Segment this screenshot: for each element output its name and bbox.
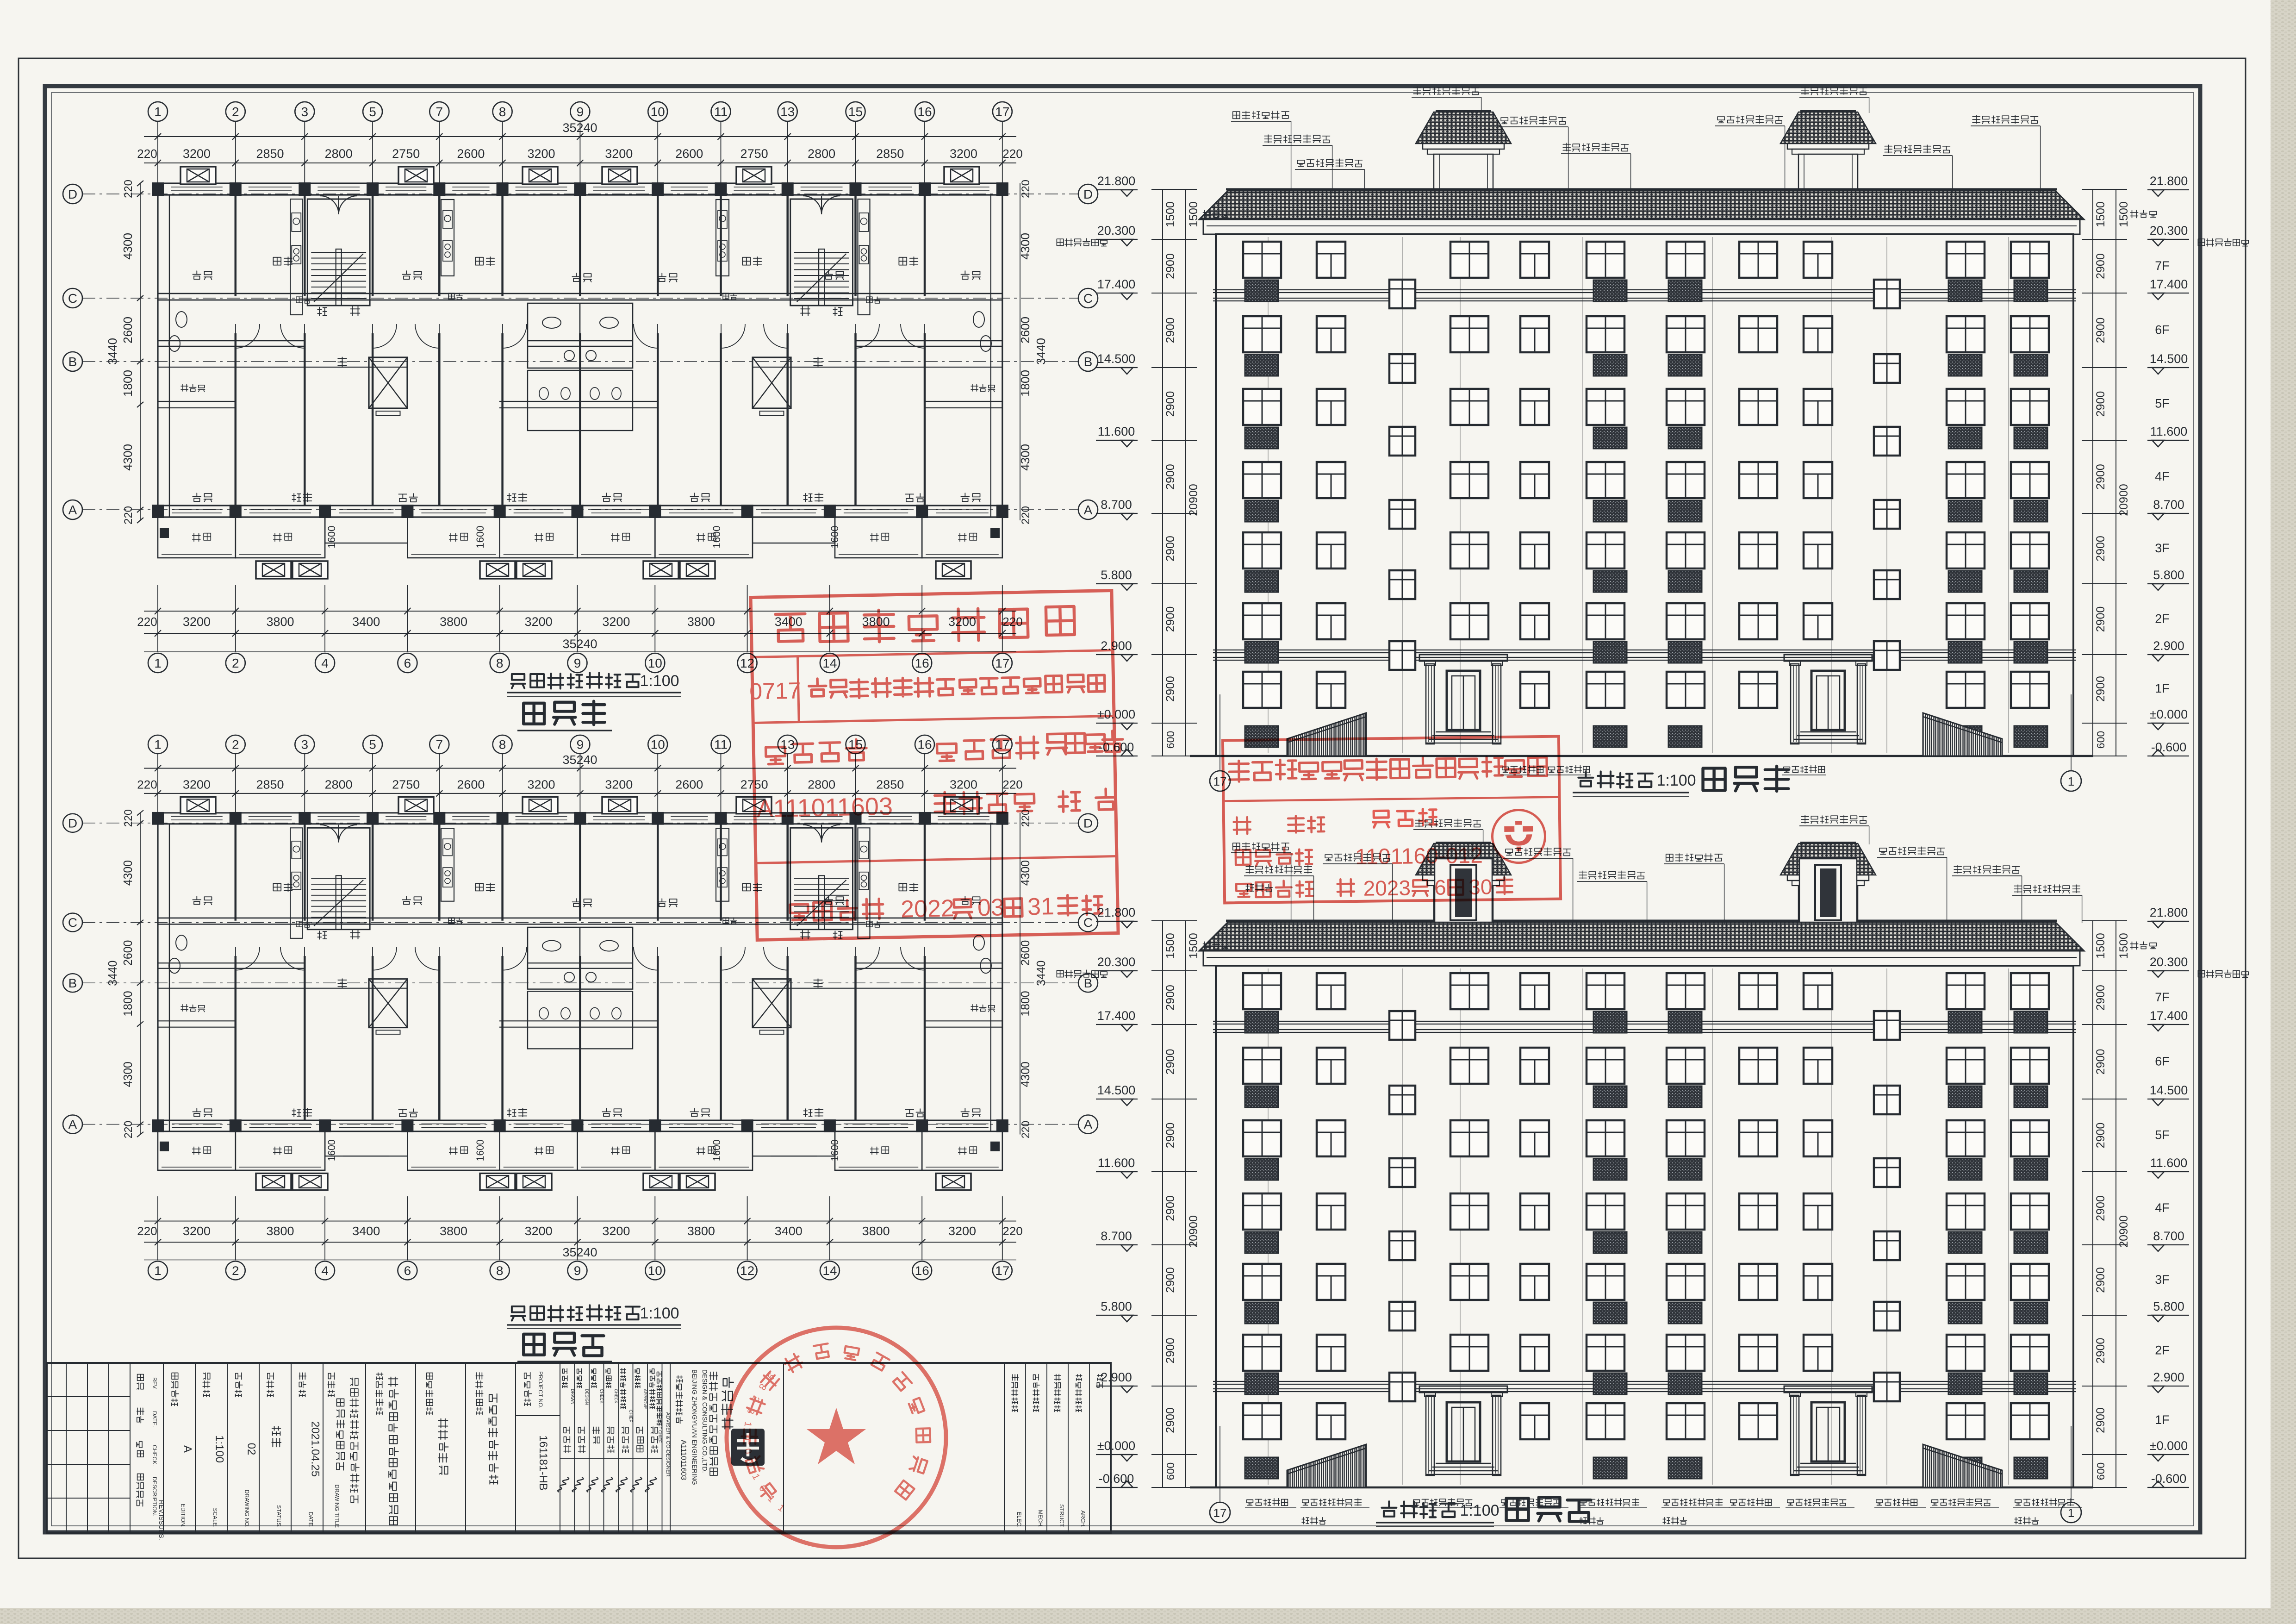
svg-text:MECH.: MECH. <box>1037 1510 1044 1528</box>
svg-text:1101160-012: 1101160-012 <box>1355 843 1483 869</box>
svg-text:A111011603: A111011603 <box>679 1440 687 1480</box>
svg-text:DESIGN & CONSULTING CO.,LTD.: DESIGN & CONSULTING CO.,LTD. <box>701 1369 709 1473</box>
svg-text:1600: 1600 <box>326 526 337 549</box>
svg-text:2F: 2F <box>2155 612 2170 626</box>
svg-text:0: 0 <box>741 1435 752 1441</box>
svg-text:1:100: 1:100 <box>1460 1502 1499 1519</box>
svg-text:2900: 2900 <box>1164 464 1177 490</box>
svg-text:2600: 2600 <box>675 147 703 161</box>
svg-text:3200: 3200 <box>183 147 211 161</box>
svg-text:7F: 7F <box>2155 259 2170 273</box>
svg-text:20900: 20900 <box>1187 484 1200 516</box>
svg-text:A111011603: A111011603 <box>756 793 893 823</box>
svg-text:2600: 2600 <box>1018 317 1032 344</box>
svg-text:2900: 2900 <box>2094 464 2107 490</box>
svg-text:A: A <box>1084 503 1093 517</box>
svg-text:03: 03 <box>977 894 1005 921</box>
svg-text:1:100: 1:100 <box>1656 772 1696 789</box>
svg-text:2900: 2900 <box>1164 606 1177 632</box>
svg-text:4300: 4300 <box>1018 444 1032 471</box>
svg-text:DRAWING TITLE: DRAWING TITLE <box>334 1485 340 1528</box>
svg-text:1800: 1800 <box>121 370 135 397</box>
svg-text:2900: 2900 <box>1164 536 1177 562</box>
svg-text:10: 10 <box>651 105 665 119</box>
svg-text:3440: 3440 <box>1034 338 1048 365</box>
svg-text:2022: 2022 <box>901 895 955 923</box>
svg-text:16: 16 <box>917 105 932 119</box>
svg-text:D: D <box>1083 187 1093 201</box>
svg-text:30: 30 <box>1468 874 1493 899</box>
svg-text:2850: 2850 <box>256 147 284 161</box>
svg-text:4: 4 <box>321 656 329 670</box>
svg-text:3F: 3F <box>2155 541 2170 555</box>
svg-text:600: 600 <box>1164 731 1176 749</box>
svg-text:1: 1 <box>154 656 162 670</box>
svg-text:2600: 2600 <box>121 317 135 344</box>
svg-text:1800: 1800 <box>1018 370 1032 397</box>
svg-text:600: 600 <box>2095 731 2107 749</box>
svg-text:2.900: 2.900 <box>2153 639 2184 653</box>
svg-text:2900: 2900 <box>2094 253 2107 279</box>
svg-text:±0.000: ±0.000 <box>1097 707 1135 721</box>
svg-text:220: 220 <box>137 147 157 161</box>
svg-text:14: 14 <box>822 656 837 670</box>
svg-text:STRUCT.: STRUCT. <box>1058 1504 1065 1528</box>
svg-text:10: 10 <box>648 656 662 670</box>
svg-text:220: 220 <box>1002 147 1022 161</box>
svg-text:C: C <box>68 291 77 306</box>
svg-text:8.700: 8.700 <box>1101 498 1132 512</box>
svg-text:13: 13 <box>780 105 795 119</box>
svg-text:20900: 20900 <box>2117 484 2130 516</box>
svg-text:STATUS.: STATUS. <box>276 1505 282 1528</box>
svg-text:02: 02 <box>245 1443 258 1455</box>
svg-text:11.600: 11.600 <box>2150 425 2188 438</box>
svg-text:1: 1 <box>2068 775 2074 788</box>
svg-text:6: 6 <box>1434 875 1446 899</box>
svg-text:1600: 1600 <box>474 526 486 549</box>
svg-text:2: 2 <box>232 656 239 670</box>
svg-text:ARCH.: ARCH. <box>1080 1511 1086 1528</box>
svg-text:5.800: 5.800 <box>1101 568 1132 582</box>
svg-text:11.600: 11.600 <box>1098 425 1135 438</box>
svg-text:1500: 1500 <box>2094 201 2107 227</box>
svg-text:6: 6 <box>404 656 411 670</box>
svg-text:2750: 2750 <box>392 147 420 161</box>
svg-text:4300: 4300 <box>121 444 135 471</box>
svg-text:1:100: 1:100 <box>640 672 679 690</box>
svg-text:1500: 1500 <box>2117 201 2130 227</box>
svg-text:2900: 2900 <box>2094 318 2107 344</box>
svg-text:21.800: 21.800 <box>1097 174 1136 188</box>
svg-text:3400: 3400 <box>352 615 380 629</box>
svg-text:20.300: 20.300 <box>1097 224 1136 237</box>
svg-text:ADVISER & CO-DESIGNER: ADVISER & CO-DESIGNER <box>665 1412 671 1476</box>
svg-text:2023: 2023 <box>1363 876 1411 900</box>
svg-text:220: 220 <box>1020 506 1032 525</box>
svg-text:3200: 3200 <box>605 147 633 161</box>
svg-text:161181-HB: 161181-HB <box>537 1435 549 1491</box>
svg-text:16: 16 <box>915 656 929 670</box>
svg-text:11: 11 <box>714 105 728 119</box>
svg-text:220: 220 <box>1020 180 1032 198</box>
svg-text:PROJECT NO.: PROJECT NO. <box>537 1371 544 1408</box>
svg-text:5: 5 <box>369 105 376 119</box>
svg-text:BEIJING ZHONGYUAN ENGINEERING: BEIJING ZHONGYUAN ENGINEERING <box>691 1369 698 1485</box>
svg-text:A: A <box>181 1445 194 1453</box>
svg-text:-0.600: -0.600 <box>2151 740 2187 754</box>
svg-text:8: 8 <box>499 105 506 119</box>
svg-text:220: 220 <box>122 506 135 525</box>
svg-text:9: 9 <box>577 105 584 119</box>
svg-text:21.800: 21.800 <box>2150 174 2188 188</box>
svg-text:DESIGN: DESIGN <box>585 1389 589 1405</box>
svg-text:7: 7 <box>436 105 443 119</box>
svg-text:17: 17 <box>995 105 1009 119</box>
svg-text:B: B <box>68 355 77 369</box>
svg-text:REV.ISSUES.: REV.ISSUES. <box>158 1500 165 1540</box>
svg-text:2900: 2900 <box>1164 391 1177 417</box>
svg-text:17.400: 17.400 <box>2150 277 2188 291</box>
svg-text:1:100: 1:100 <box>640 1305 679 1322</box>
svg-text:5.800: 5.800 <box>2153 568 2184 582</box>
svg-text:1500: 1500 <box>1164 201 1177 227</box>
svg-text:SCALE.: SCALE. <box>212 1508 218 1528</box>
svg-text:B: B <box>1084 355 1093 369</box>
svg-text:3200: 3200 <box>183 615 211 629</box>
svg-text:8: 8 <box>496 656 504 670</box>
svg-text:3200: 3200 <box>527 147 555 161</box>
svg-text:4300: 4300 <box>121 233 135 260</box>
svg-text:2800: 2800 <box>325 147 353 161</box>
svg-text:14.500: 14.500 <box>1097 352 1136 366</box>
svg-text:220: 220 <box>122 180 135 198</box>
svg-text:15: 15 <box>848 105 863 119</box>
svg-text:14.500: 14.500 <box>2150 352 2188 366</box>
svg-text:C: C <box>1083 291 1093 306</box>
svg-text:9: 9 <box>574 656 581 670</box>
svg-text:3800: 3800 <box>440 615 467 629</box>
svg-text:4F: 4F <box>2155 469 2170 483</box>
svg-text:REV.: REV. <box>151 1377 158 1390</box>
svg-text:2800: 2800 <box>808 147 835 161</box>
svg-text:CHECK.: CHECK. <box>151 1445 158 1466</box>
svg-text:DESCRIPTION.: DESCRIPTION. <box>151 1477 158 1516</box>
svg-text:2900: 2900 <box>2094 391 2107 417</box>
svg-text:1F: 1F <box>2155 681 2170 695</box>
svg-text:2900: 2900 <box>1164 676 1177 702</box>
svg-text:CHIEF: CHIEF <box>628 1410 633 1423</box>
svg-text:ELEC.: ELEC. <box>1016 1512 1022 1528</box>
svg-text:2600: 2600 <box>457 147 485 161</box>
svg-text:20.300: 20.300 <box>2150 224 2188 237</box>
svg-text:2750: 2750 <box>740 147 768 161</box>
svg-text:2850: 2850 <box>876 147 904 161</box>
svg-text:1: 1 <box>154 105 162 119</box>
svg-text:A: A <box>68 503 77 517</box>
svg-text:APPROVE: APPROVE <box>643 1389 647 1409</box>
svg-text:31: 31 <box>1027 893 1054 920</box>
svg-text:17.400: 17.400 <box>1097 277 1136 291</box>
svg-text:3200: 3200 <box>525 615 553 629</box>
svg-text:4300: 4300 <box>1018 233 1032 260</box>
svg-text:2021.04.25: 2021.04.25 <box>309 1421 322 1477</box>
svg-text:2900: 2900 <box>1164 253 1177 279</box>
svg-text:8.700: 8.700 <box>2153 498 2184 512</box>
svg-text:17: 17 <box>995 656 1009 670</box>
svg-text:2: 2 <box>232 105 239 119</box>
svg-text:±0.000: ±0.000 <box>2150 707 2188 721</box>
svg-text:2900: 2900 <box>1164 318 1177 344</box>
svg-text:2900: 2900 <box>2094 676 2107 702</box>
svg-text:DRAWN: DRAWN <box>570 1389 575 1405</box>
svg-text:2900: 2900 <box>2094 536 2107 562</box>
svg-text:3800: 3800 <box>687 615 715 629</box>
svg-text:1600: 1600 <box>829 526 840 549</box>
svg-text:3400: 3400 <box>775 615 803 629</box>
svg-text:2900: 2900 <box>2094 606 2107 632</box>
svg-text:1500: 1500 <box>1187 201 1200 227</box>
svg-text:1:100: 1:100 <box>213 1435 226 1463</box>
svg-text:CHECK: CHECK <box>599 1389 604 1404</box>
svg-text:DRAWING NO.: DRAWING NO. <box>244 1490 250 1528</box>
svg-text:3440: 3440 <box>106 338 119 365</box>
svg-text:35240: 35240 <box>562 637 597 651</box>
svg-text:3: 3 <box>301 105 309 119</box>
svg-text:3200: 3200 <box>950 147 977 161</box>
svg-text:17: 17 <box>1213 775 1227 788</box>
svg-text:6F: 6F <box>2155 323 2170 337</box>
svg-text:5F: 5F <box>2155 397 2170 411</box>
svg-text:CHECK: CHECK <box>614 1389 618 1404</box>
svg-text:DATE.: DATE. <box>151 1411 158 1427</box>
svg-text:3800: 3800 <box>266 615 294 629</box>
svg-text:DATE.: DATE. <box>308 1512 314 1528</box>
svg-text:EDITION.: EDITION. <box>180 1504 187 1528</box>
svg-text:3200: 3200 <box>602 615 630 629</box>
svg-text:220: 220 <box>137 615 157 629</box>
svg-text:0717: 0717 <box>749 678 801 705</box>
svg-text:D: D <box>68 187 77 201</box>
